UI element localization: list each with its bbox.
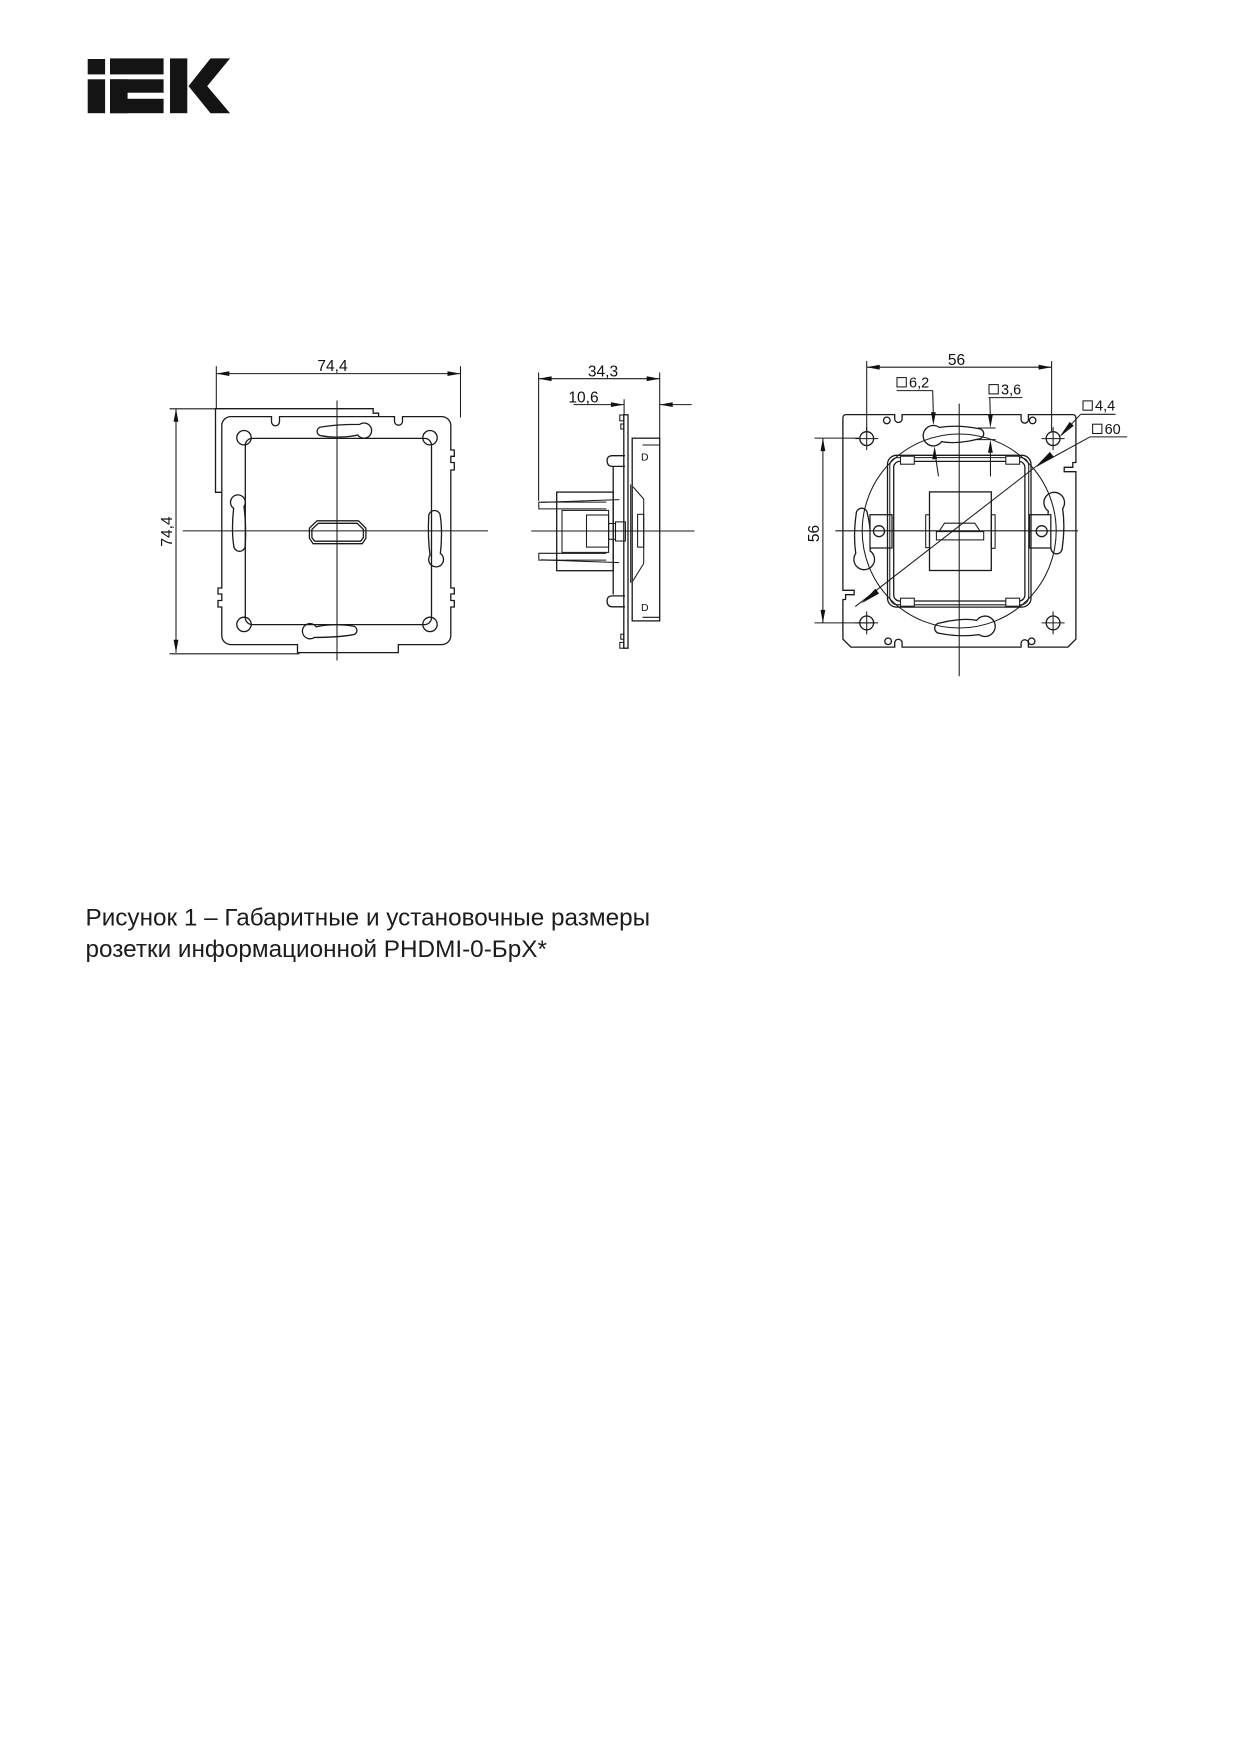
svg-text:74,4: 74,4 [317,358,348,375]
svg-text:60: 60 [1105,422,1121,438]
svg-text:4,4: 4,4 [1095,399,1115,415]
svg-text:56: 56 [806,525,823,542]
svg-text:56: 56 [948,352,965,369]
svg-text:6,2: 6,2 [909,375,929,391]
svg-text:10,6: 10,6 [568,390,598,407]
svg-text:розетки информационной PHDMI-0: розетки информационной PHDMI-0-БрХ* [86,936,548,963]
svg-text:D: D [641,602,649,614]
svg-text:Рисунок 1 – Габаритные и устан: Рисунок 1 – Габаритные и установочные ра… [86,905,651,932]
svg-text:34,3: 34,3 [588,364,618,381]
svg-text:D: D [641,452,649,464]
svg-text:3,6: 3,6 [1001,382,1021,398]
svg-text:74,4: 74,4 [159,516,176,547]
